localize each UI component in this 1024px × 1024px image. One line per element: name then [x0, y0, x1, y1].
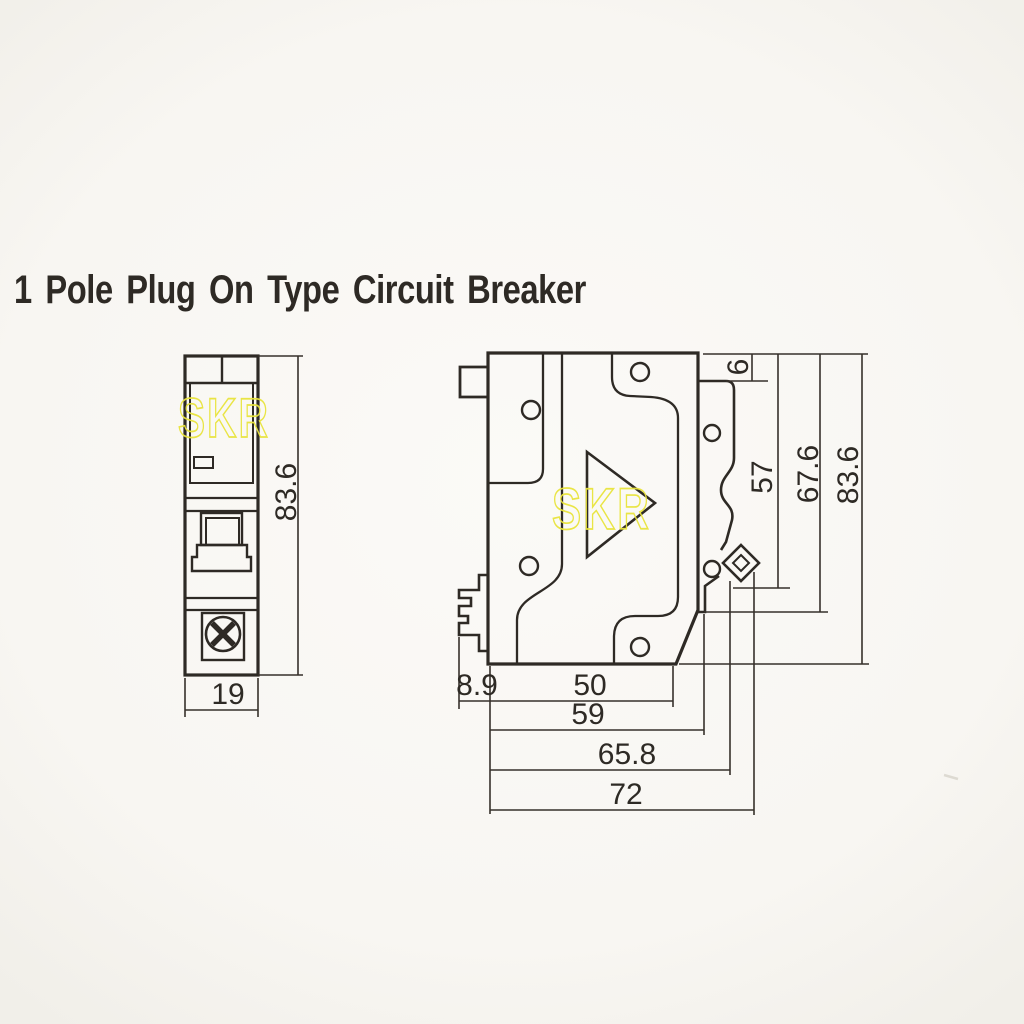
mounting-panel-foot: [698, 576, 719, 612]
latch-clip-inner: [733, 555, 749, 571]
technical-drawing: 1 Pole Plug On Type Circuit Breaker 83.6…: [0, 0, 1024, 1024]
watermark-text-front: SKR: [178, 386, 270, 449]
dim-label-top-offset: 6: [722, 359, 755, 376]
rivet-hole-top-center: [631, 363, 649, 381]
rivet-hole-bottom-left: [520, 557, 538, 575]
side-top-terminal-tab: [460, 367, 488, 397]
front-toggle-slot: [206, 518, 239, 545]
dim-label-8-9: 8.9: [456, 669, 498, 702]
panel-hole-top: [704, 425, 720, 441]
watermark-text-side: SKR: [552, 477, 651, 542]
dim-label-front-height: 83.6: [270, 463, 303, 521]
dim-label-67-6: 67.6: [792, 445, 825, 503]
dim-label-front-width: 19: [211, 678, 244, 711]
dim-label-65-8: 65.8: [598, 738, 656, 771]
rivet-hole-top-left: [522, 401, 540, 419]
paper-blemish: [944, 775, 958, 779]
dim-label-59: 59: [571, 698, 604, 731]
dim-label-72: 72: [609, 778, 642, 811]
plug-on-jaw-profile: [459, 575, 487, 651]
dim-label-side-83-6: 83.6: [832, 446, 865, 504]
front-toggle-handle: [192, 545, 251, 571]
catalog-page: 1 Pole Plug On Type Circuit Breaker 83.6…: [0, 0, 1024, 1024]
rivet-hole-bottom-center: [631, 638, 649, 656]
page-title: 1 Pole Plug On Type Circuit Breaker: [14, 268, 586, 312]
front-indicator-window: [194, 457, 213, 468]
mounting-panel-edge: [698, 381, 734, 550]
dim-label-57: 57: [746, 460, 779, 493]
panel-hole-bottom: [704, 561, 720, 577]
side-view-dimensions: 6 57 67.6 83.6 8.9 50 59 65.8 72: [456, 354, 869, 815]
